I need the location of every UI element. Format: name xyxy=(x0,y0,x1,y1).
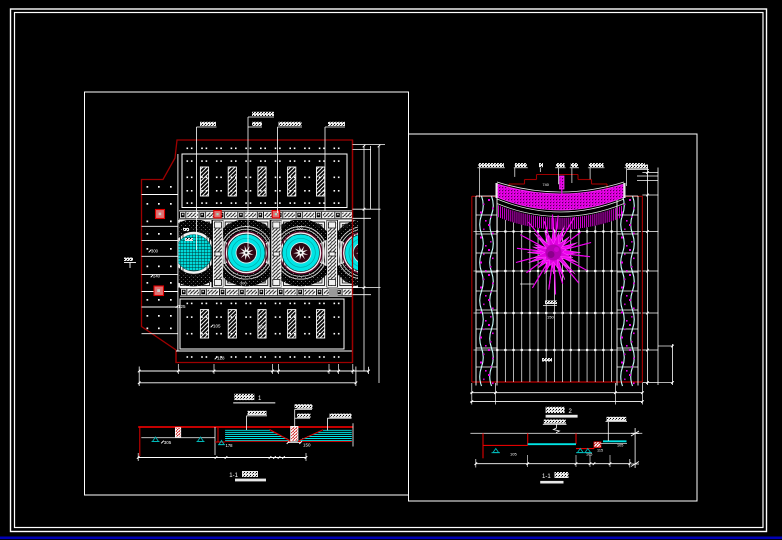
svg-text:105: 105 xyxy=(213,324,221,329)
svg-text:105: 105 xyxy=(510,452,517,457)
svg-text:115: 115 xyxy=(597,449,603,453)
svg-text:150: 150 xyxy=(547,315,554,320)
svg-text:125: 125 xyxy=(178,304,186,309)
svg-text:105: 105 xyxy=(617,444,623,448)
svg-text:150: 150 xyxy=(303,443,311,448)
svg-text:300: 300 xyxy=(240,281,247,286)
svg-text:305: 305 xyxy=(164,440,172,445)
svg-text:740: 740 xyxy=(543,183,549,187)
svg-text:128: 128 xyxy=(217,356,225,361)
svg-text:700: 700 xyxy=(296,226,303,231)
svg-text:105: 105 xyxy=(586,453,592,457)
svg-text:1-1: 1-1 xyxy=(542,474,551,480)
svg-text:178: 178 xyxy=(226,443,234,448)
svg-text:300: 300 xyxy=(258,325,266,330)
svg-text:300: 300 xyxy=(151,249,159,254)
svg-text:1-1: 1-1 xyxy=(229,473,238,479)
svg-text:240: 240 xyxy=(153,274,161,279)
